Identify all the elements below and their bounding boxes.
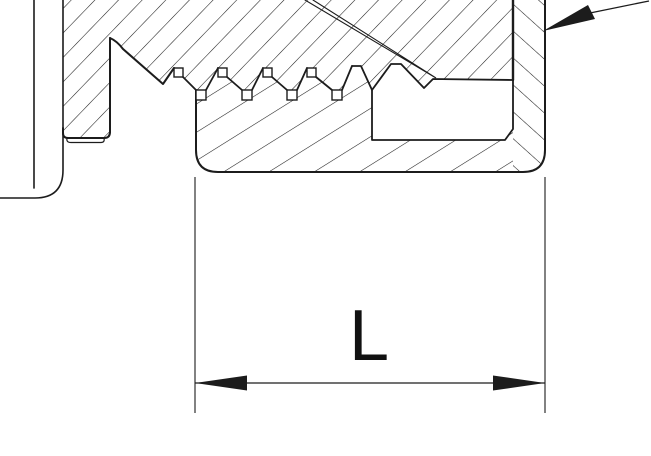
leader-line — [590, 1, 649, 13]
crest-clearance-square — [174, 68, 183, 77]
root-clearance-square — [196, 90, 206, 100]
root-clearance-square — [332, 90, 342, 100]
technical-drawing-canvas: L — [0, 0, 651, 456]
crest-clearance-square — [307, 68, 316, 77]
dimension-arrowhead-left-icon — [195, 376, 247, 391]
housing-bore-and-shoulder — [0, 0, 63, 198]
root-clearance-square — [242, 90, 252, 100]
leader-arrowhead-icon — [543, 5, 595, 31]
section-drawing: L — [0, 0, 651, 456]
recess-outline — [372, 80, 513, 140]
housing-outline — [0, 0, 63, 198]
dimension-label: L — [349, 296, 389, 376]
crest-clearance-square — [263, 68, 272, 77]
crest-clearance-square — [218, 68, 227, 77]
root-clearance-square — [287, 90, 297, 100]
dimension-arrowhead-right-icon — [493, 376, 545, 391]
right-insert-hatch — [513, 0, 545, 172]
dimension-L: L — [195, 177, 545, 413]
leader-arrow — [543, 1, 649, 31]
